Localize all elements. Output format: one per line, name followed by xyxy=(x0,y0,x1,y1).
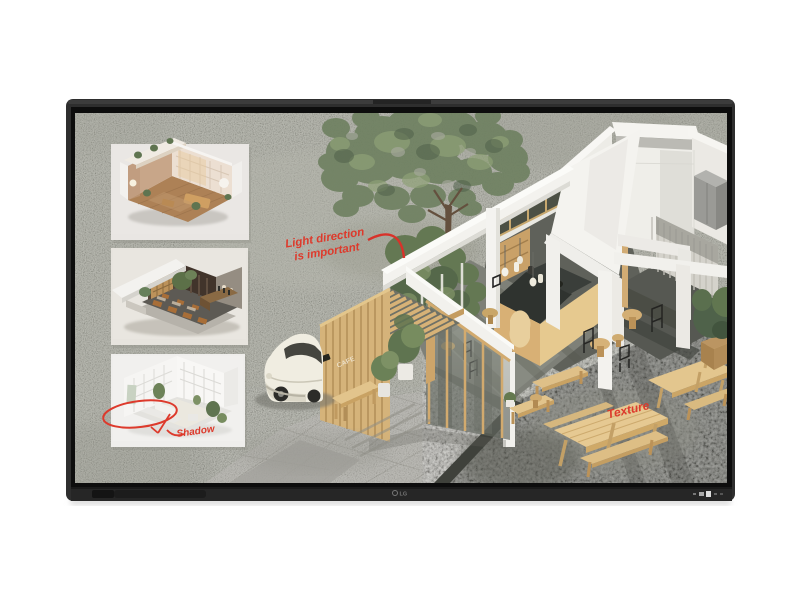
svg-text:LG: LG xyxy=(400,492,408,498)
